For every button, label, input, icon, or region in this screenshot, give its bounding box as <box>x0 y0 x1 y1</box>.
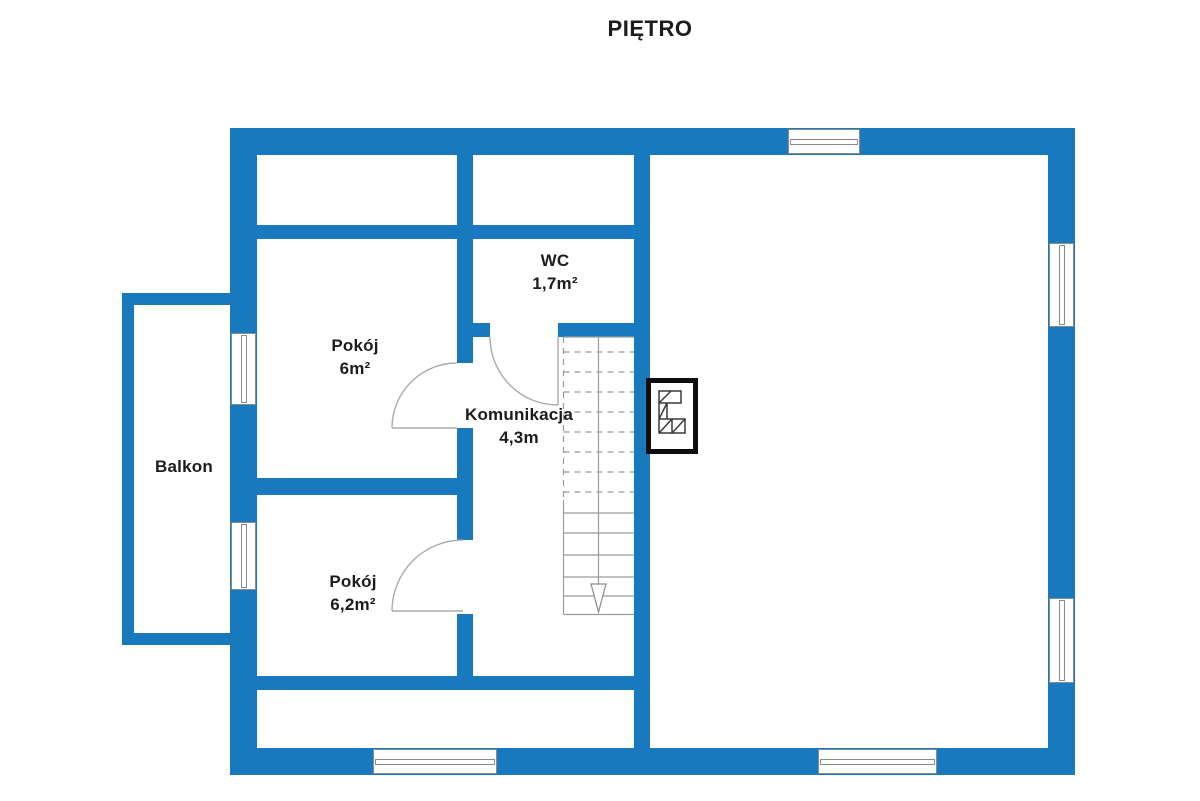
stair-treads-lower <box>564 513 635 596</box>
window-top <box>788 129 860 154</box>
chimney <box>646 378 698 454</box>
room-label-wc: WC 1,7m² <box>495 249 615 295</box>
door-arc-wc <box>490 337 558 405</box>
room-name: Komunikacja <box>433 403 605 426</box>
window-glazing <box>375 759 495 765</box>
window-left-lower <box>231 522 256 590</box>
window-glazing <box>241 524 247 588</box>
room-name: Balkon <box>125 455 243 478</box>
wall-outer-top <box>230 128 1075 155</box>
room-area: 6m² <box>295 357 415 380</box>
chimney-flue-icon <box>651 383 693 449</box>
room-label-komunikacja: Komunikacja 4,3m <box>433 403 605 449</box>
wall-divider-rooms <box>257 478 473 495</box>
window-glazing <box>790 139 858 145</box>
wall-bottom-band <box>257 676 634 690</box>
down-arrow-icon <box>591 584 606 612</box>
window-glazing <box>1059 600 1065 681</box>
page-title: PIĘTRO <box>450 16 850 42</box>
room-label-pokoj-1: Pokój 6m² <box>295 334 415 380</box>
room-name: Pokój <box>295 334 415 357</box>
wall-outer-left <box>230 128 257 775</box>
staircase <box>564 337 635 615</box>
room-area: 4,3m <box>433 426 605 449</box>
room-label-pokoj-2: Pokój 6,2m² <box>293 570 413 616</box>
floor-plan: PIĘTRO <box>0 0 1200 801</box>
room-area: 1,7m² <box>495 272 615 295</box>
window-left-upper <box>231 333 256 405</box>
window-glazing <box>1059 245 1065 325</box>
wall-stairwell-top <box>558 323 634 337</box>
room-name: WC <box>495 249 615 272</box>
window-right-upper <box>1049 243 1074 327</box>
window-bottom-left <box>373 749 497 774</box>
window-glazing <box>820 759 935 765</box>
wall-wc-bottom-left <box>457 323 490 337</box>
room-label-balkon: Balkon <box>125 455 243 478</box>
room-name: Pokój <box>293 570 413 593</box>
balcony-wall-bottom <box>122 633 257 645</box>
balcony-wall-top <box>122 293 257 305</box>
window-glazing <box>241 335 247 403</box>
doors <box>392 337 558 611</box>
window-right-lower <box>1049 598 1074 683</box>
wall-top-band <box>257 225 634 239</box>
wall-outer-bottom <box>230 748 1075 775</box>
window-bottom-right <box>818 749 937 774</box>
room-area: 6,2m² <box>293 593 413 616</box>
